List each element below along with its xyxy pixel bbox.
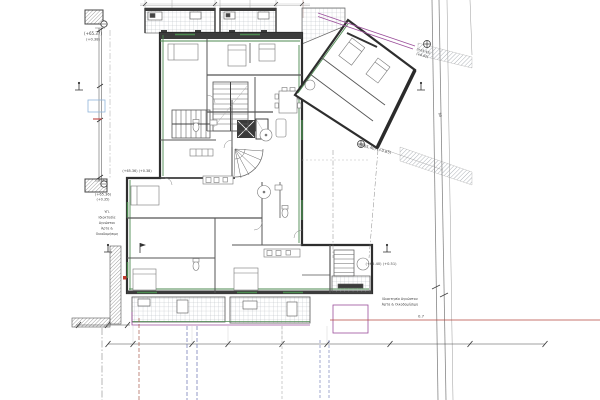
level-label-top-left-2: (+0.38) <box>86 38 100 42</box>
level-label-west-wall: (+65.36) (+0.38) <box>122 169 152 173</box>
survey-blue-box <box>88 100 105 112</box>
toilet <box>193 262 199 271</box>
sink <box>275 185 282 190</box>
level-label-top-left: (+65.37) <box>84 31 102 36</box>
neighbour-wall-v <box>110 246 121 324</box>
dim-label-boundary-offset: 0.7 <box>418 314 425 319</box>
property-note-right: Ιδιοκτησία Αγνώστου Άρτα & Οικοδομήσιμη <box>382 297 419 307</box>
wing-fixture <box>305 80 315 90</box>
terrace-e <box>230 297 310 323</box>
toilet <box>193 123 199 132</box>
toilet <box>282 209 288 218</box>
hatch-strips <box>400 43 472 185</box>
wall-stub-top <box>85 10 103 24</box>
property-note-left: ΥΠ. Ιδιοκτησία Αγνώστου Άρτα & Οικοδομήσ… <box>96 210 119 236</box>
bathtub <box>276 119 286 137</box>
dimension-lines <box>76 2 548 347</box>
svg-text:Άρτα & Οικοδομήσιμη: Άρτα & Οικοδομήσιμη <box>382 303 419 307</box>
svg-text:Ιδιοκτησία Αγνώστου: Ιδιοκτησία Αγνώστου <box>382 297 417 301</box>
closet-row <box>190 149 213 156</box>
dim-label-road-width: 80 <box>438 112 443 117</box>
svg-text:Αγνώστου: Αγνώστου <box>99 221 115 225</box>
svg-text:Ιδιοκτησία: Ιδιοκτησία <box>99 216 116 220</box>
svg-text:Άρτα &: Άρτα & <box>101 227 113 231</box>
existing-walls <box>72 10 121 327</box>
sink <box>210 120 217 125</box>
svg-text:ΥΠ.: ΥΠ. <box>104 210 109 214</box>
level-label-south-east: (+65.40) (+0.51) <box>365 262 397 266</box>
floor-plan-page: (+65.37) (+0.38) (+65.36) (+0.38) (+65.3… <box>0 0 600 400</box>
svg-text:Οικοδομήσιμη: Οικοδομήσιμη <box>96 232 119 236</box>
hatch-strip-lower <box>400 147 472 185</box>
red-marker <box>123 276 127 280</box>
floor-plan-canvas: (+65.37) (+0.38) (+65.36) (+0.38) (+65.3… <box>0 0 600 400</box>
level-label-bottom-left-2: (+0.35) <box>96 198 110 202</box>
level-label-bottom-left: (+65.36) <box>95 193 112 197</box>
